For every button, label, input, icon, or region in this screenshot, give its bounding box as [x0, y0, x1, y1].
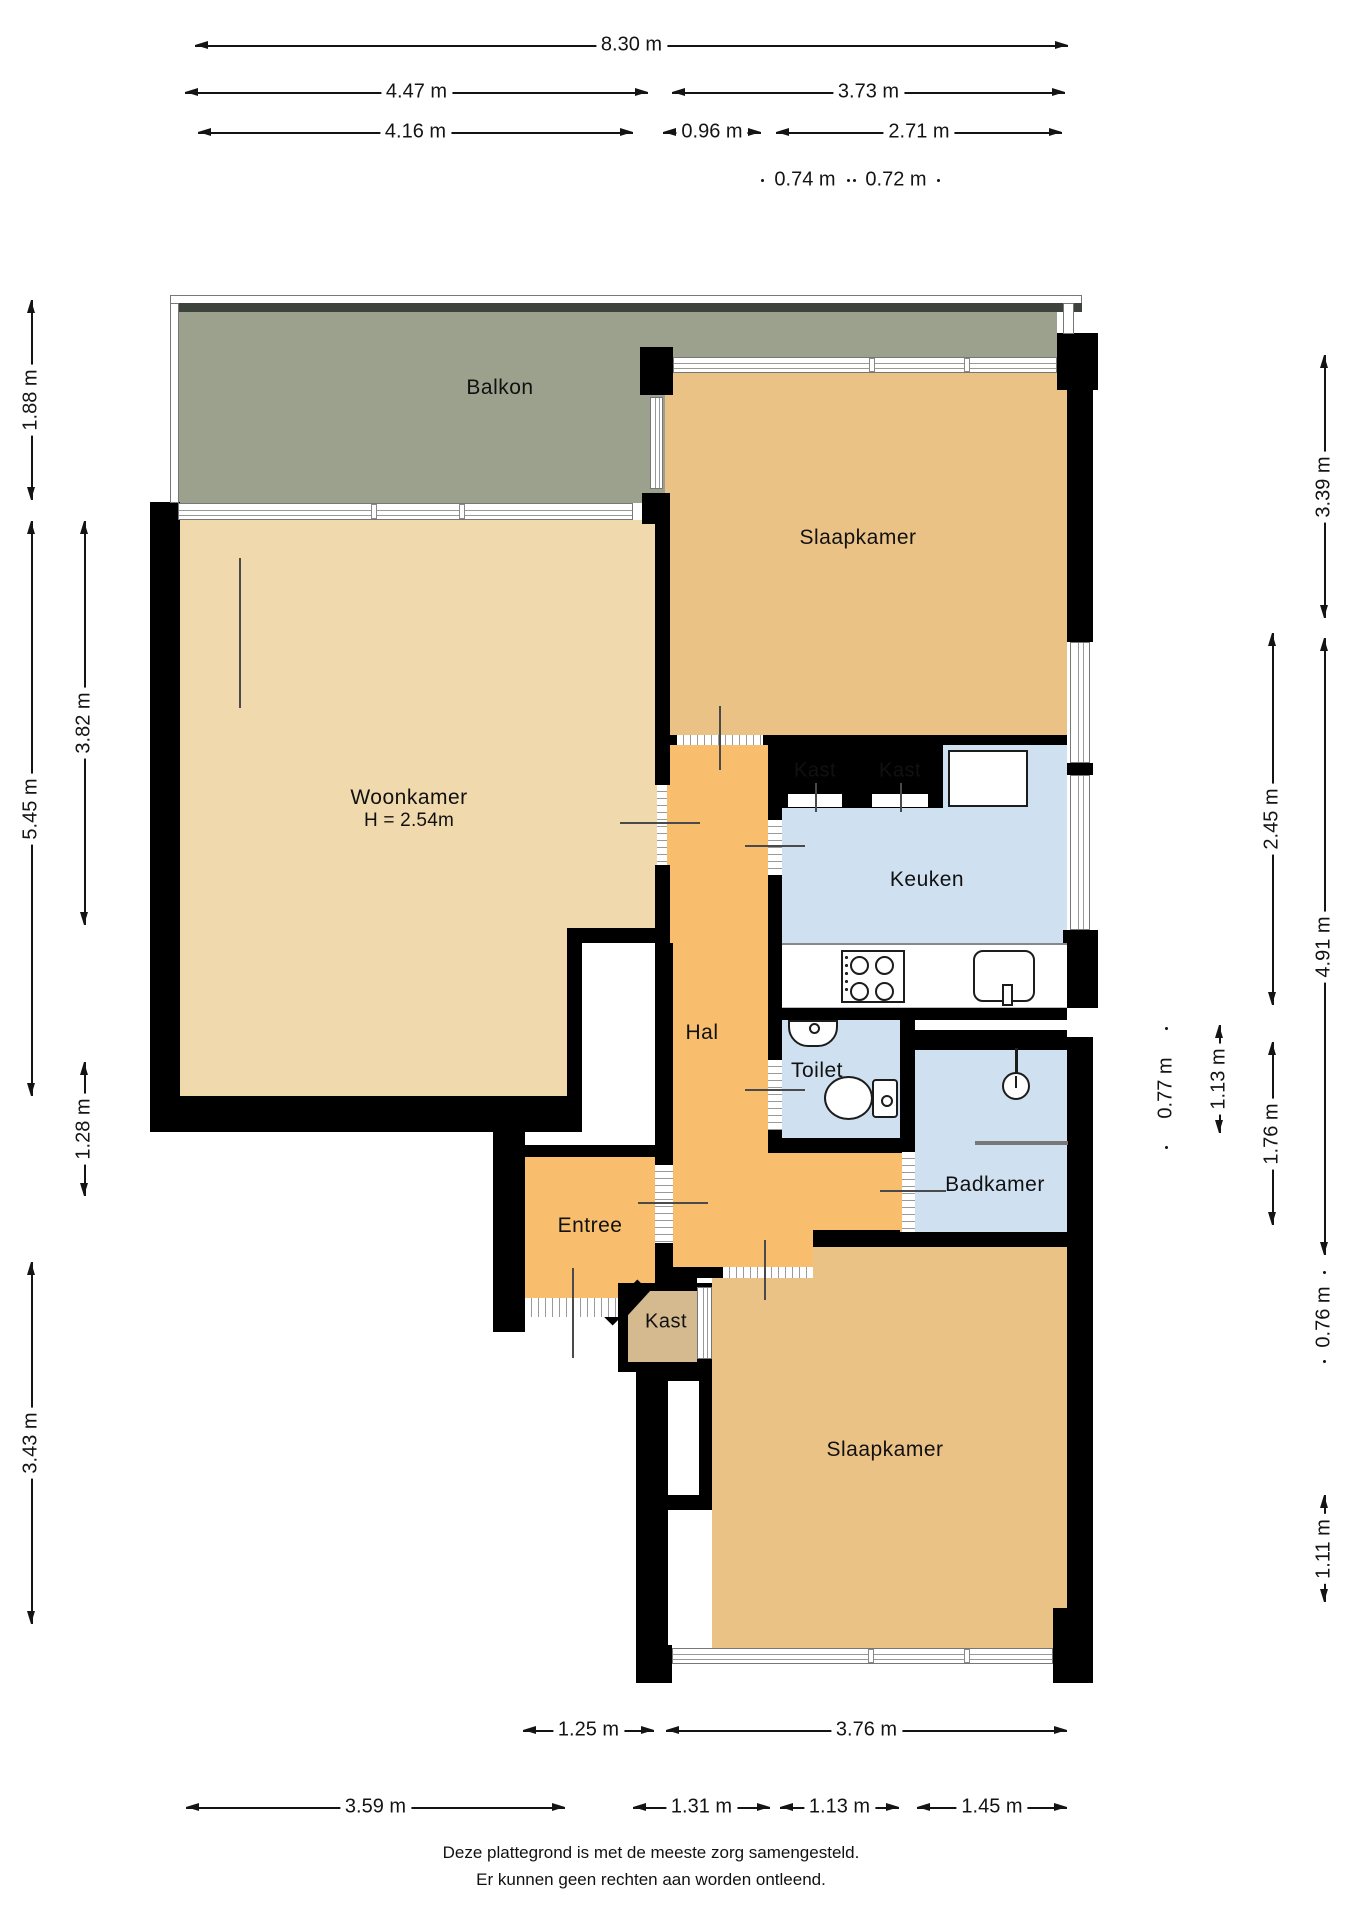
dimension-t3: 3.73 m [672, 92, 1065, 94]
window [1070, 775, 1090, 930]
dimension-label: 4.91 m [1313, 911, 1336, 982]
dimension-label: 3.43 m [20, 1407, 43, 1478]
room-label-kast-3: Kast [645, 1311, 687, 1334]
door-tick [745, 1089, 805, 1091]
wall [567, 928, 582, 1132]
dimension-b6: 1.45 m [917, 1807, 1067, 1809]
window-mullion [459, 504, 465, 519]
arrowhead-left-icon [198, 128, 211, 136]
arrowhead-right-icon [1049, 128, 1062, 136]
wall [493, 1120, 525, 1332]
stove-burner-icon [875, 982, 894, 1001]
dimension-r8: 1.11 m [1324, 1495, 1326, 1602]
wall [655, 865, 670, 943]
stove [841, 950, 905, 1003]
wall [900, 1232, 1093, 1247]
wall [1053, 1608, 1093, 1683]
arrowhead-up-icon [1215, 1025, 1223, 1038]
stove-knob-dot [845, 988, 848, 991]
window-pane-line [707, 1288, 708, 1358]
arrowhead-right-icon [1054, 1726, 1067, 1734]
arrowhead-right-icon [620, 128, 633, 136]
dimension-label: 1.25 m [553, 1719, 624, 1742]
arrowhead-right-icon [886, 1803, 899, 1811]
room-label-slaapkamer-top: Slaapkamer [799, 526, 916, 550]
window-pane-line [703, 1288, 704, 1358]
room-label-kast-1: Kast [794, 760, 836, 783]
window-pane-line [179, 515, 632, 516]
room-label-slaapkamer-bottom: Slaapkamer [826, 1438, 943, 1462]
wall [1067, 1247, 1093, 1612]
arrowhead-up-icon [27, 300, 35, 313]
arrowhead-left-icon [633, 1803, 646, 1811]
dimension-label: 4.47 m [381, 81, 452, 104]
door-opening [723, 1267, 813, 1278]
dimension-r7: 0.76 m [1324, 1272, 1326, 1362]
dimension-label: 3.76 m [831, 1719, 902, 1742]
dimension-label: 0.72 m [860, 169, 931, 192]
dimension-dot [847, 179, 850, 182]
wall [655, 1243, 673, 1283]
footer-disclaimer-line1: Deze plattegrond is met de meeste zorg s… [0, 1843, 1302, 1863]
wall [900, 1030, 1068, 1050]
dimension-label: 2.45 m [1261, 783, 1284, 854]
door-tick [764, 1240, 766, 1300]
dimension-dot [1165, 1146, 1168, 1149]
window-pane-line [1083, 643, 1084, 762]
arrowhead-up-icon [1320, 638, 1328, 651]
arrowhead-left-icon [185, 88, 198, 96]
dimension-label: 1.13 m [1208, 1043, 1231, 1114]
door-tick [620, 822, 700, 824]
balcony-parapet [170, 303, 1082, 312]
dimension-dot [1323, 1360, 1326, 1363]
door-tick [719, 706, 721, 770]
wall [1067, 357, 1093, 642]
arrowhead-left-icon [186, 1803, 199, 1811]
dimension-label: 1.11 m [1313, 1514, 1336, 1584]
dimension-b1: 1.25 m [523, 1730, 654, 1732]
dimension-label: 5.45 m [20, 773, 43, 844]
wall [1067, 1037, 1093, 1247]
arrowhead-left-icon [917, 1803, 930, 1811]
dimension-r1: 3.39 m [1324, 355, 1326, 618]
dimension-label: 2.71 m [883, 121, 954, 144]
dimension-dot [937, 179, 940, 182]
door-tick [572, 1268, 574, 1358]
wall [642, 493, 670, 524]
arrowhead-down-icon [1268, 1212, 1276, 1225]
dimension-r3: 4.91 m [1324, 638, 1326, 1255]
room-fill-hal-b [667, 1153, 902, 1232]
arrowhead-down-icon [1320, 1589, 1328, 1602]
window-pane-line [673, 1659, 1052, 1660]
stove-burner-icon [850, 982, 869, 1001]
arrowhead-right-icon [1055, 41, 1068, 49]
room-label-woonkamer-height: H = 2.54m [350, 810, 467, 832]
door-opening [768, 1060, 782, 1130]
dimension-label: 0.74 m [769, 169, 840, 192]
wall [782, 1138, 915, 1153]
dimension-t1: 8.30 m [195, 45, 1068, 47]
wall [150, 502, 180, 1132]
toilet-flush-dot [881, 1095, 893, 1107]
room-label-woonkamer-name: Woonkamer [350, 786, 467, 809]
dimension-label: 0.77 m [1155, 1052, 1178, 1123]
wall [697, 1267, 723, 1278]
shower-partition [975, 1141, 1068, 1145]
wall [655, 943, 673, 1157]
door-tick [638, 1202, 708, 1204]
footer-disclaimer-line2: Er kunnen geen rechten aan worden ontlee… [0, 1870, 1302, 1890]
door-opening [657, 785, 667, 865]
dimension-l5: 3.43 m [31, 1262, 33, 1624]
shower-head-pin [1015, 1076, 1017, 1088]
dimension-dot [761, 179, 764, 182]
window-pane-line [674, 368, 1056, 369]
faucet-icon [1002, 984, 1013, 1006]
room-fill-slaapkamer-bottom-a [813, 1247, 1067, 1278]
dimension-r5: 1.13 m [1219, 1025, 1221, 1133]
room-label-keuken: Keuken [890, 868, 964, 892]
kitchen-appliance [948, 750, 1028, 807]
dimension-label: 3.73 m [833, 81, 904, 104]
arrowhead-left-icon [195, 41, 208, 49]
room-label-toilet: Toilet [791, 1059, 843, 1083]
dimension-dot [1165, 1027, 1168, 1030]
arrowhead-right-icon [641, 1726, 654, 1734]
dimension-l1: 1.88 m [31, 300, 33, 500]
arrowhead-right-icon [757, 1803, 770, 1811]
dimension-label: 1.13 m [804, 1796, 875, 1819]
dimension-r4: 0.77 m [1166, 1028, 1168, 1148]
arrowhead-down-icon [1215, 1120, 1223, 1133]
arrowhead-left-icon [523, 1726, 536, 1734]
dimension-label: 3.59 m [340, 1796, 411, 1819]
arrowhead-up-icon [27, 1262, 35, 1275]
room-label-badkamer: Badkamer [945, 1173, 1045, 1197]
window-mullion [964, 358, 970, 372]
stove-knob-dot [845, 980, 848, 983]
dimension-l2: 5.45 m [31, 521, 33, 1096]
stove-knob-dot [845, 972, 848, 975]
arrowhead-right-icon [1052, 88, 1065, 96]
window [673, 357, 1057, 373]
arrowhead-up-icon [1320, 355, 1328, 368]
dimension-b5: 1.13 m [780, 1807, 899, 1809]
dimension-label: 0.96 m [676, 121, 747, 144]
wall [525, 1145, 655, 1157]
dimension-label: 3.82 m [73, 687, 96, 758]
balcony-railing-right [1063, 303, 1074, 334]
arrowhead-down-icon [80, 1183, 88, 1196]
stove-burner-icon [850, 956, 869, 975]
window-pane-line [1083, 776, 1084, 929]
dimension-label: 1.76 m [1261, 1098, 1284, 1169]
dimension-label: 1.45 m [956, 1796, 1027, 1819]
door-opening [902, 1152, 915, 1232]
arrowhead-down-icon [1320, 605, 1328, 618]
wall [655, 522, 670, 785]
window-pane-line [1078, 776, 1079, 929]
arrowhead-up-icon [80, 521, 88, 534]
arrowhead-down-icon [1268, 992, 1276, 1005]
window-pane-line [674, 363, 1056, 364]
stove-burner-icon [875, 956, 894, 975]
arrowhead-left-icon [672, 88, 685, 96]
door-opening [655, 1165, 673, 1243]
wall [813, 1230, 900, 1247]
arrowhead-right-icon [552, 1803, 565, 1811]
room-label-hal: Hal [685, 1021, 718, 1045]
window-mullion [868, 1649, 874, 1663]
room-label-woonkamer: WoonkamerH = 2.54m [350, 786, 467, 832]
window-mullion [371, 504, 377, 519]
dimension-r6: 1.76 m [1272, 1042, 1274, 1225]
dimension-t6: 2.71 m [776, 132, 1062, 134]
arrowhead-up-icon [1268, 1042, 1276, 1055]
dimension-label: 4.16 m [380, 121, 451, 144]
window [650, 397, 663, 489]
faucet-icon [809, 1023, 820, 1034]
arrowhead-down-icon [27, 487, 35, 500]
arrowhead-right-icon [1054, 1803, 1067, 1811]
window-mullion [964, 1649, 970, 1663]
arrowhead-left-icon [663, 128, 676, 136]
dimension-label: 1.31 m [666, 1796, 737, 1819]
arrowhead-down-icon [1320, 1242, 1328, 1255]
window [1070, 642, 1090, 763]
room-fill-slaapkamer-top [665, 373, 1067, 735]
dimension-label: 1.88 m [20, 364, 43, 435]
arrowhead-left-icon [776, 128, 789, 136]
arrowhead-right-icon [635, 88, 648, 96]
room-label-entree: Entree [558, 1214, 623, 1238]
arrowhead-down-icon [27, 1083, 35, 1096]
door-tick [900, 783, 902, 812]
arrowhead-down-icon [80, 912, 88, 925]
balcony-railing-left [170, 303, 179, 503]
window-mullion [869, 358, 875, 372]
window [178, 503, 633, 520]
dimension-t4: 4.16 m [198, 132, 633, 134]
window-pane-line [659, 398, 660, 488]
dimension-t7: 0.74 m [762, 180, 848, 182]
room-fill-slaapkamer-bottom-b [712, 1278, 1067, 1648]
dimension-t2: 4.47 m [185, 92, 648, 94]
dimension-t5: 0.96 m [663, 132, 761, 134]
stove-knob-dot [845, 956, 848, 959]
dimension-l3: 3.82 m [84, 521, 86, 925]
room-fill-exterior-notch [582, 943, 655, 1132]
dimension-dot [1323, 1271, 1326, 1274]
window-pane-line [179, 510, 632, 511]
arrowhead-up-icon [1268, 633, 1276, 646]
wall [1063, 930, 1098, 1008]
room-label-balkon: Balkon [466, 376, 533, 400]
door-tick [815, 783, 817, 812]
dimension-label: 1.28 m [73, 1093, 96, 1164]
dimension-dot [853, 179, 856, 182]
arrowhead-left-icon [780, 1803, 793, 1811]
wall [655, 1148, 673, 1165]
arrowhead-right-icon [748, 128, 761, 136]
arrowhead-left-icon [666, 1726, 679, 1734]
door-opening [768, 820, 782, 875]
dimension-label: 8.30 m [596, 34, 667, 57]
window-pane-line [655, 398, 656, 488]
door-tick [745, 845, 805, 847]
wall-gap [1067, 1008, 1093, 1037]
door-tick [239, 558, 241, 708]
window [697, 1287, 712, 1359]
stove-knob-dot [845, 964, 848, 967]
dimension-b2: 3.76 m [666, 1730, 1067, 1732]
dimension-l4: 1.28 m [84, 1062, 86, 1196]
window-pane-line [1078, 643, 1079, 762]
room-fill-hal-c [673, 1232, 813, 1267]
arrowhead-up-icon [27, 521, 35, 534]
wall [636, 1645, 672, 1683]
shower-stem [1015, 1048, 1018, 1074]
arrowhead-up-icon [1320, 1495, 1328, 1508]
dimension-r2: 2.45 m [1272, 633, 1274, 1005]
window [672, 1648, 1053, 1664]
toilet-cistern [872, 1079, 898, 1118]
wall-niche [668, 1381, 699, 1495]
floor-plan: 8.30 m4.47 m3.73 m4.16 m0.96 m2.71 m0.74… [0, 0, 1358, 1920]
arrowhead-up-icon [80, 1062, 88, 1075]
room-label-kast-2: Kast [879, 760, 921, 783]
dimension-b3: 3.59 m [186, 1807, 565, 1809]
dimension-t8: 0.72 m [854, 180, 938, 182]
arrowhead-down-icon [27, 1611, 35, 1624]
wall [640, 347, 673, 395]
window-pane-line [673, 1654, 1052, 1655]
kitchen-sink [973, 950, 1035, 1002]
door-tick [880, 1190, 946, 1192]
dimension-b4: 1.31 m [633, 1807, 770, 1809]
wall [1067, 763, 1093, 775]
wall [636, 1372, 668, 1683]
dimension-label: 3.39 m [1313, 451, 1336, 522]
dimension-label: 0.76 m [1313, 1281, 1336, 1352]
